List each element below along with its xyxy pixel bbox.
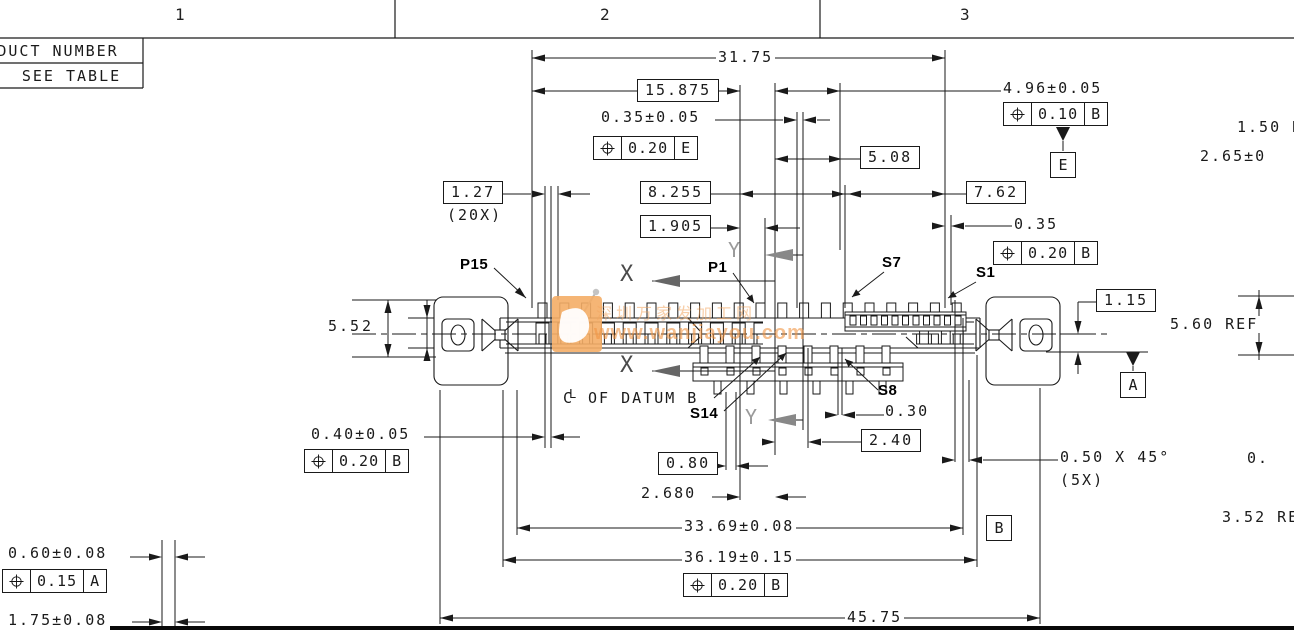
dim-1-27-count: (20X) [447,207,502,224]
watermark-url-text: www.wanjiayou.com [594,322,806,345]
dim-31-75: 31.75 [716,49,775,66]
fcf-position-020-e: 0.20 E [593,136,698,160]
dim-5-60-ref: 5.60 REF [1168,316,1260,333]
pin-label-s1: S1 [976,264,995,281]
position-tolerance-icon [684,574,711,596]
fcf-datum-ref: A [83,570,106,592]
dim-0-60: 0.60±0.08 [8,545,107,562]
sheet-bottom-edge [110,626,1294,630]
zone-label-2: 2 [600,5,610,24]
dim-1-27: 1.27 [443,181,503,204]
datum-a-triangle [1126,352,1140,366]
position-tolerance-icon [594,137,621,159]
fcf-tolerance-value: 0.15 [30,570,83,592]
dim-0-40: 0.40±0.05 [311,426,410,443]
fcf-position-020-b-left: 0.20 B [304,449,409,473]
fcf-tolerance-value: 0.10 [1031,103,1084,125]
dim-0-35-right: 0.35 [1014,216,1058,233]
fcf-datum-ref: B [1074,242,1097,264]
datum-e-triangle [1056,127,1070,141]
title-block-product-number: PRODUCT NUMBER [0,40,143,62]
dim-5-08: 5.08 [860,146,920,169]
watermark-cn-text: 深圳万家发加工网 [596,300,756,324]
dim-33-69: 33.69±0.08 [682,518,796,535]
zone-label-3: 3 [960,5,970,24]
pin-label-s8: S8 [878,382,897,399]
position-tolerance-icon [3,570,30,592]
fcf-datum-ref: B [1084,103,1107,125]
position-tolerance-icon [1004,103,1031,125]
dim-1-15: 1.15 [1096,289,1156,312]
pin-label-s14: S14 [690,405,718,422]
fcf-tolerance-value: 0.20 [711,574,764,596]
dim-2: 2 [362,318,373,335]
drawing-sheet: 1 2 3 PRODUCT NUMBER SEE TABLE 31.75 15.… [0,0,1294,630]
fcf-tolerance-value: 0.20 [332,450,385,472]
upper-contact-strip [845,312,966,331]
pin-label-p15: P15 [460,256,488,273]
datum-flag-e: E [1050,152,1076,178]
fcf-tolerance-value: 0.20 [621,137,674,159]
dim-1-75: 1.75±0.08 [8,612,107,629]
dim-0-50-count: (5X) [1060,472,1104,489]
section-label-y-top: Y [728,238,740,262]
fcf-tolerance-value: 0.20 [1021,242,1074,264]
dim-4-96: 4.96±0.05 [1003,80,1102,97]
fcf-position-020-b-right: 0.20 B [993,241,1098,265]
centerline-icon: CL [563,390,577,407]
fcf-datum-ref: B [385,450,408,472]
dim-0-80: 0.80 [658,452,718,475]
centerline-of-datum-b-note: CL OF DATUM B [563,390,698,407]
dim-45-75: 45.75 [845,609,904,626]
section-label-x-top: X [620,262,633,287]
dim-2-680: 2.680 [641,485,696,502]
dim-0-cut: 0. [1247,450,1269,467]
position-tolerance-icon [994,242,1021,264]
dim-36-19: 36.19±0.15 [682,549,796,566]
dim-0-35-top: 0.35±0.05 [601,109,700,126]
dim-5-5: 5.5 [328,318,361,335]
title-block-see-table: SEE TABLE [0,65,143,87]
section-label-x-bottom: X [620,353,633,378]
dim-15-875: 15.875 [637,79,719,102]
dim-1-905: 1.905 [640,215,711,238]
section-label-y-bottom: Y [745,405,757,429]
fcf-datum-ref: E [674,137,697,159]
fcf-position-020-b-bottom: 0.20 B [683,573,788,597]
dim-0-30: 0.30 [885,403,929,420]
dim-2-40: 2.40 [861,429,921,452]
dim-1-50-ref: 1.50 R [1237,119,1294,136]
fcf-position-010-b: 0.10 B [1003,102,1108,126]
dim-0-50-chamfer: 0.50 X 45° [1060,449,1170,466]
sheet-border [0,0,1294,88]
fcf-datum-ref: B [764,574,787,596]
zone-label-1: 1 [175,5,185,24]
dim-7-62: 7.62 [966,181,1026,204]
pin-label-p1: P1 [708,259,727,276]
dim-3-52-ref: 3.52 REF [1222,509,1294,526]
datum-flag-b: B [986,515,1012,541]
datum-flag-a: A [1120,372,1146,398]
position-tolerance-icon [305,450,332,472]
pin-label-s7: S7 [882,254,901,271]
dim-8-255: 8.255 [640,181,711,204]
fcf-position-015-a: 0.15 A [2,569,107,593]
centerline-note-text: OF DATUM B [588,389,698,407]
dim-2-65: 2.65±0 [1200,148,1266,165]
